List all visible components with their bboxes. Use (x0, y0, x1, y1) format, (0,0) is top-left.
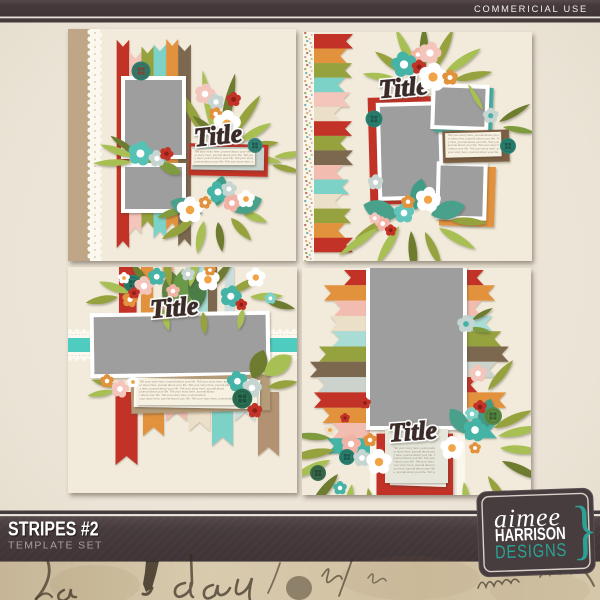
svg-text:Title: Title (193, 119, 244, 153)
svg-text:COMMERICIAL USE: COMMERICIAL USE (474, 4, 588, 14)
svg-text:DESIGNS: DESIGNS (495, 539, 568, 562)
svg-text:Title: Title (149, 291, 199, 324)
svg-text:Title: Title (388, 415, 438, 447)
svg-text:STRIPES #2: STRIPES #2 (8, 517, 99, 540)
svg-text:your story here, journal about: your story here, journal about your life… (140, 397, 236, 401)
svg-text:}: } (570, 493, 599, 567)
svg-text:TEMPLATE SET: TEMPLATE SET (8, 540, 103, 552)
